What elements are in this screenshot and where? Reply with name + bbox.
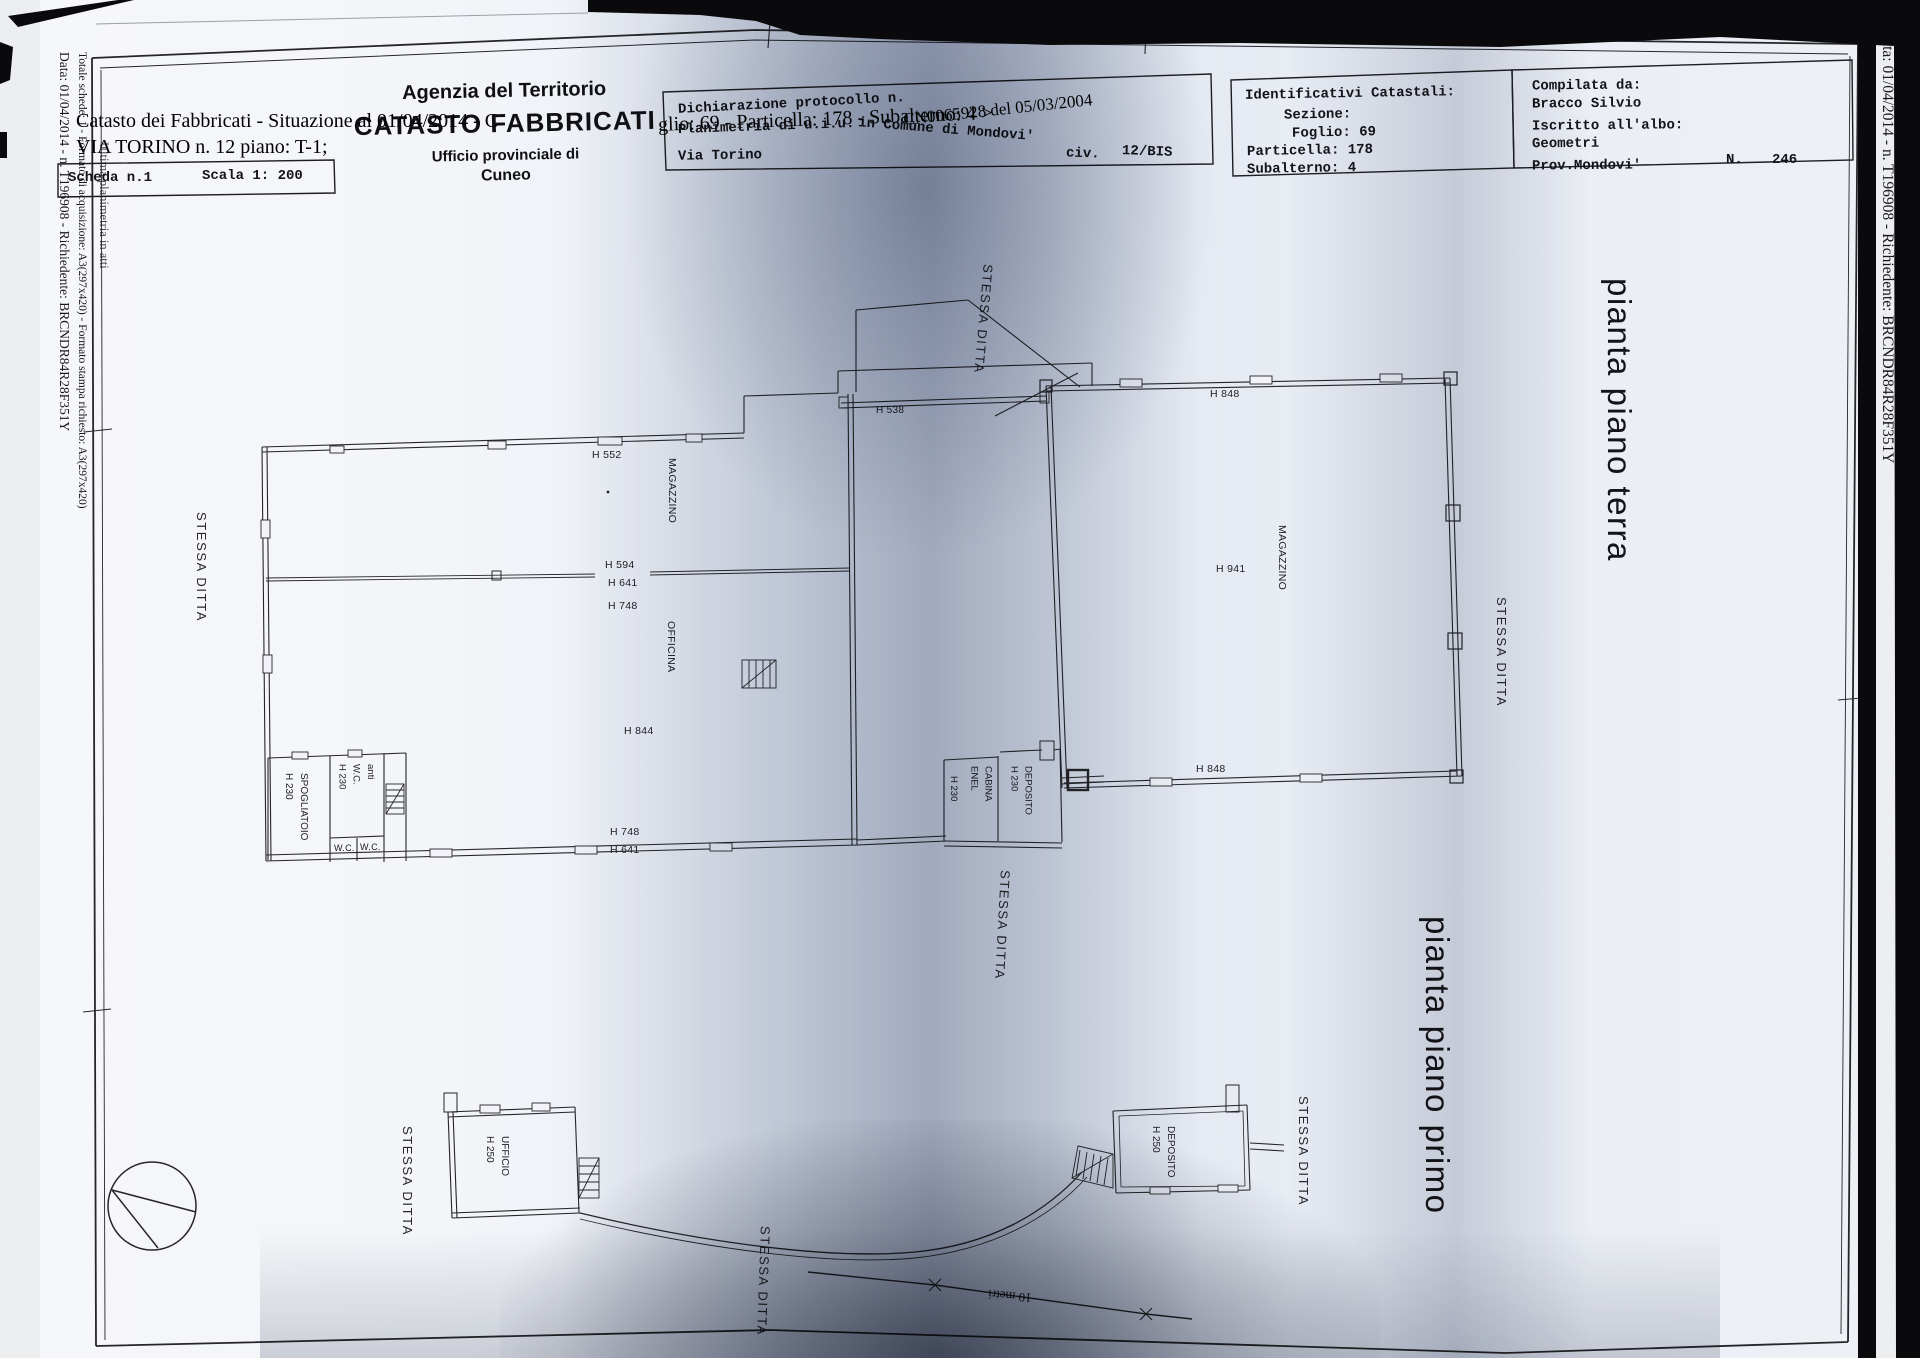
anti-wc-line1: anti	[363, 764, 377, 840]
stessa-ditta-left: STESSA DITTA	[194, 512, 209, 622]
declaration-civ-value: 12/BIS	[1122, 143, 1173, 161]
first-floor-title: pianta piano primo	[1418, 916, 1456, 1215]
room-label-spogliatoio: SPOGLIATOIO H 230	[281, 773, 311, 865]
compilata-n-label: N.	[1726, 152, 1743, 168]
compilata-albo-value: Geometri	[1532, 136, 1599, 153]
room-label-ufficio: UFFICIO H 250	[482, 1136, 512, 1218]
label-h844: H 844	[624, 725, 654, 737]
overlay-situazione-part1: Catasto dei Fabbricati - Situazione al 0…	[76, 110, 498, 133]
identificativi-particella: Particella: 178	[1247, 142, 1373, 160]
ground-floor-title: pianta piano terra	[1600, 278, 1638, 562]
room-label-magazzino-left: MAGAZZINO	[666, 458, 678, 523]
sheet-frame	[83, 13, 1862, 1353]
deposito-ground-height: H 230	[1006, 766, 1020, 842]
stessa-ditta-first-left: STESSA DITTA	[400, 1126, 415, 1236]
room-label-magazzino-right: MAGAZZINO	[1276, 525, 1288, 590]
stessa-ditta-right: STESSA DITTA	[1494, 597, 1509, 707]
anti-wc-height: H 230	[334, 764, 348, 840]
compilata-albo: Iscritto all'albo:	[1532, 117, 1683, 134]
label-cabina-height: H 230	[948, 776, 959, 836]
label-h641-mid: H 641	[608, 577, 638, 589]
left-edge-line1: Data: 01/04/2014 - n. T196908 - Richiede…	[56, 52, 72, 431]
left-edge-line2: Totale schede: 1 - Formato di acquisizio…	[76, 52, 88, 509]
room-label-deposito-ground: DEPOSITO H 230	[1006, 766, 1035, 842]
spogliatoio-name: SPOGLIATOIO	[296, 773, 311, 865]
room-label-officina: OFFICINA	[665, 621, 677, 672]
label-h748-mid: H 748	[608, 600, 638, 612]
scanned-cadastral-floor-plan: Agenzia del Territorio CATASTO FABBRICAT…	[0, 0, 1920, 1358]
stessa-ditta-first-right: STESSA DITTA	[1296, 1096, 1311, 1206]
first-floor-plan	[108, 1085, 1284, 1320]
right-edge-line: Data: 01/04/2014 - n. T196908 - Richiede…	[1878, 28, 1896, 463]
cabina-line1: CABINA	[980, 766, 994, 838]
label-h848-bottom: H 848	[1196, 763, 1226, 775]
ufficio-height: H 250	[482, 1136, 497, 1218]
label-h552: H 552	[592, 449, 622, 461]
deposito-first-name: DEPOSITO	[1163, 1126, 1178, 1192]
label-h594: H 594	[605, 559, 635, 571]
room-label-cabina-enel: CABINA ENEL	[966, 766, 995, 838]
ufficio-name: UFFICIO	[497, 1136, 512, 1218]
deposito-ground-name: DEPOSITO	[1020, 766, 1034, 842]
cabina-line2: ENEL	[966, 766, 980, 838]
room-label-wc1: W.C.	[334, 843, 355, 853]
compilata-n-value: 246	[1772, 152, 1797, 168]
compilata-name: Bracco Silvio	[1532, 96, 1641, 113]
identificativi-foglio: Foglio: 69	[1292, 124, 1376, 141]
label-h941: H 941	[1216, 563, 1246, 575]
scala-label: Scala 1: 200	[202, 168, 303, 184]
left-edge-line3: Ultima planimetria in atti	[96, 142, 111, 269]
room-label-deposito-first: DEPOSITO H 250	[1148, 1126, 1178, 1192]
anti-wc-line2: W.C.	[348, 764, 362, 840]
north-arrow-symbol	[108, 1162, 196, 1250]
label-h848-top: H 848	[1210, 388, 1240, 400]
label-h538: H 538	[876, 405, 904, 416]
overlay-address: VIA TORINO n. 12 piano: T-1;	[76, 136, 328, 159]
identificativi-subalterno: Subalterno: 4	[1247, 160, 1356, 178]
spogliatoio-height: H 230	[281, 773, 296, 865]
deposito-first-height: H 250	[1148, 1126, 1163, 1192]
plan-linework	[0, 0, 1920, 1358]
declaration-street: Via Torino	[678, 147, 762, 164]
declaration-civ-label: civ.	[1066, 145, 1100, 162]
identificativi-sezione: Sezione:	[1284, 106, 1351, 123]
label-h641-bottom: H 641	[610, 844, 640, 856]
compilata-prov: Prov.Mondovi'	[1532, 158, 1641, 175]
compilata-title: Compilata da:	[1532, 78, 1641, 95]
label-h748-bottom: H 748	[610, 826, 640, 838]
room-label-wc2: W.C.	[360, 842, 381, 852]
room-label-anti-wc: anti W.C. H 230	[334, 764, 377, 840]
